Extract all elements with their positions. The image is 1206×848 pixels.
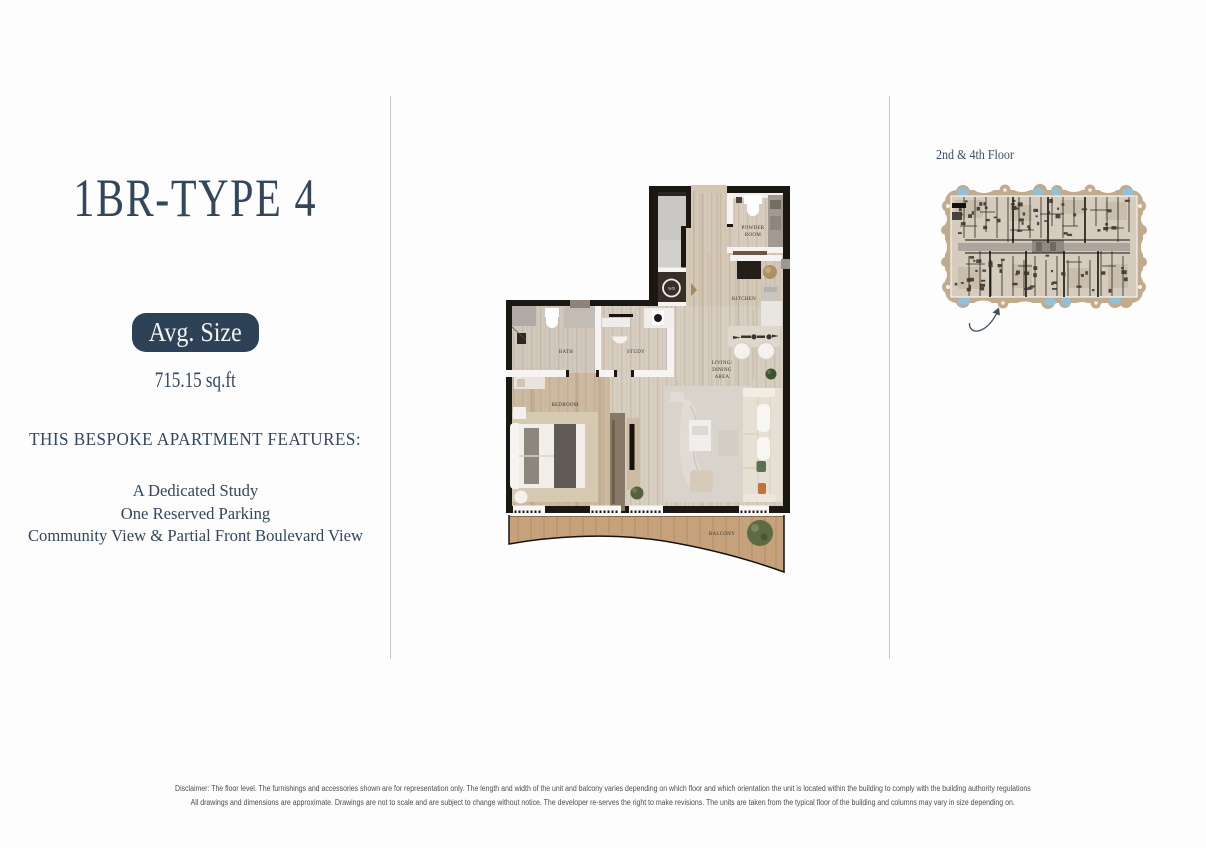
svg-text:KITCHEN: KITCHEN xyxy=(732,297,756,302)
svg-text:AREA: AREA xyxy=(715,375,730,380)
svg-text:POWDER: POWDER xyxy=(742,226,765,231)
svg-text:BALCONY: BALCONY xyxy=(709,532,735,537)
svg-text:ROOM: ROOM xyxy=(745,233,761,238)
svg-text:BEDROOM: BEDROOM xyxy=(551,403,578,408)
svg-text:BATH: BATH xyxy=(559,350,573,355)
svg-text:W/D: W/D xyxy=(668,287,675,291)
svg-text:LIVING/: LIVING/ xyxy=(712,361,733,366)
svg-text:STUDY: STUDY xyxy=(627,350,645,355)
svg-text:DINING: DINING xyxy=(712,368,732,373)
